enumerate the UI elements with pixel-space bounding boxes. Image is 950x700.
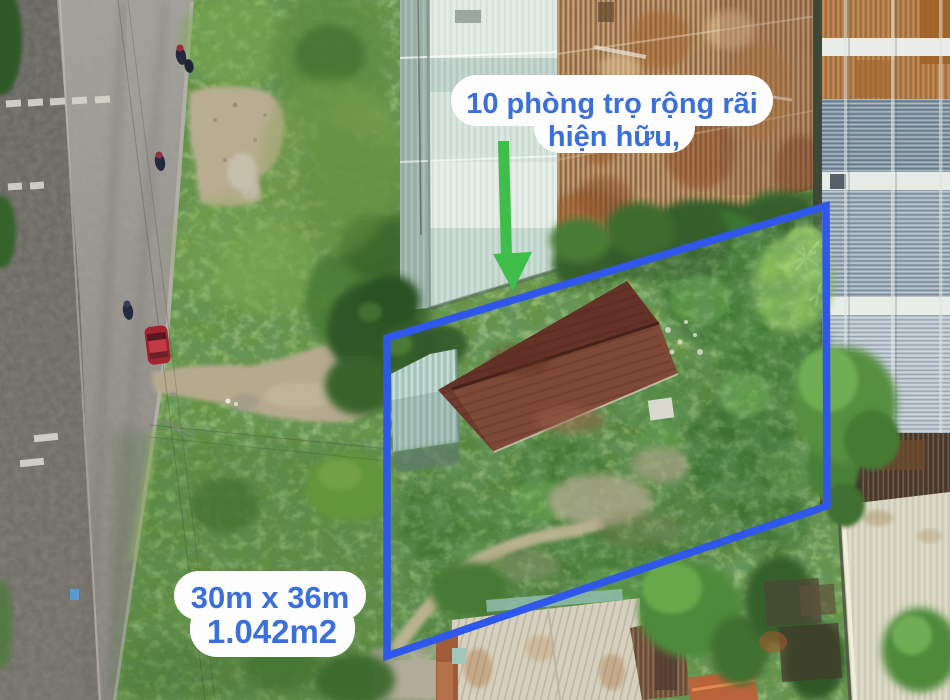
svg-text:hiện hữu,: hiện hữu, xyxy=(548,121,680,153)
svg-text:30m x 36m: 30m x 36m xyxy=(191,580,350,615)
svg-text:10 phòng trọ rộng rãi: 10 phòng trọ rộng rãi xyxy=(466,88,758,120)
svg-text:1.042m2: 1.042m2 xyxy=(207,613,337,650)
